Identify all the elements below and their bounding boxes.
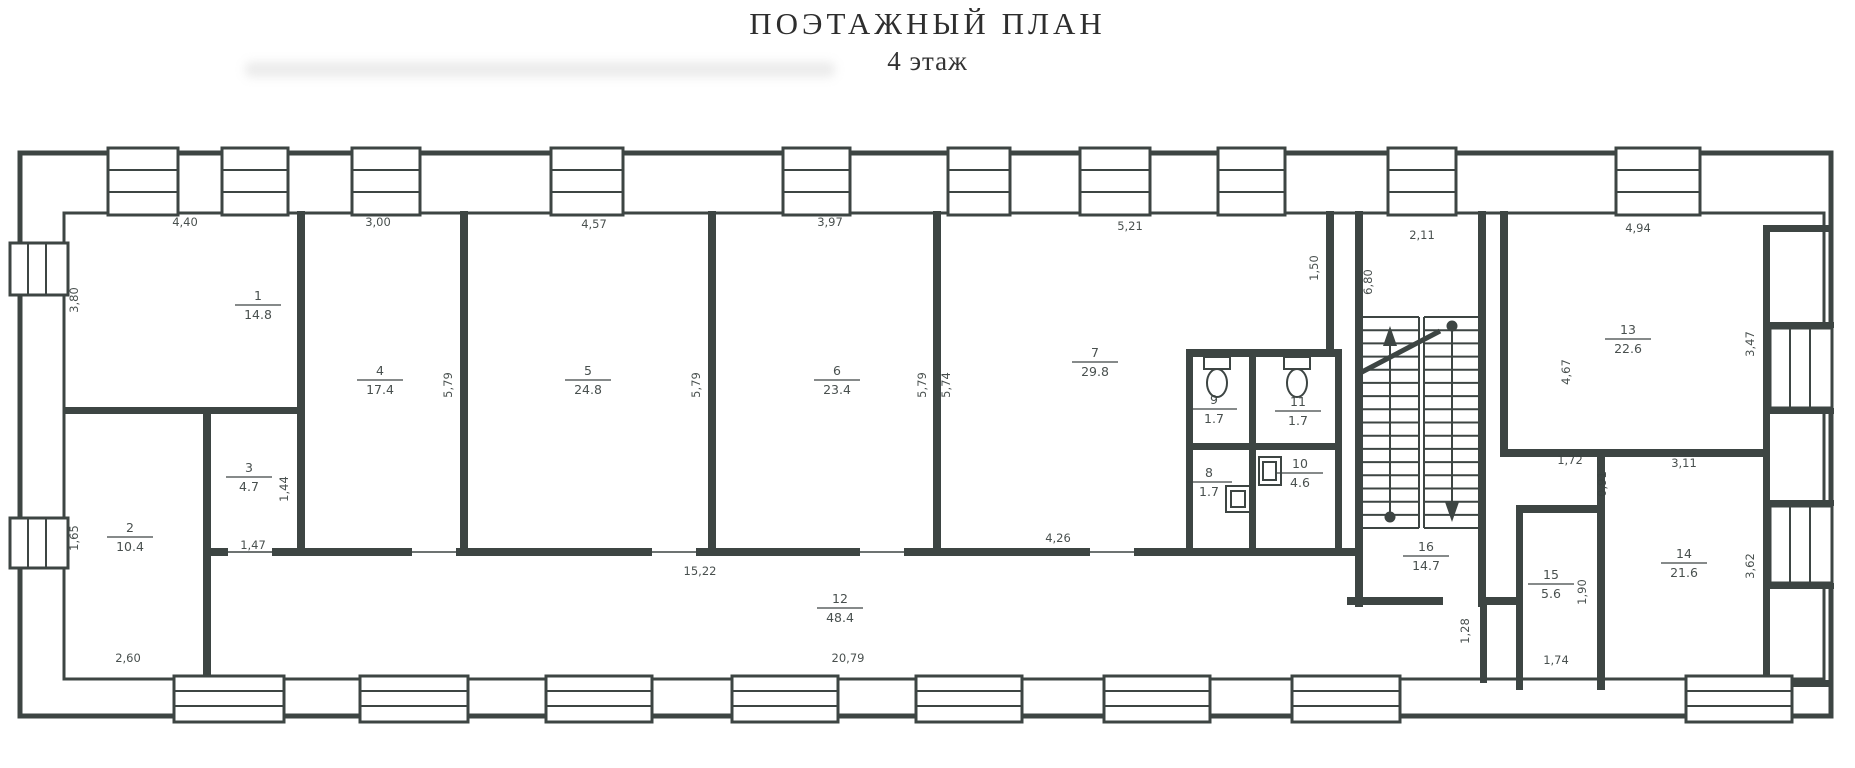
dimension-18-1,65: 1,65 [67,525,81,551]
room-6-label: 623.4 [814,363,860,397]
room-8-number: 8 [1205,465,1213,480]
room-7-number: 7 [1091,345,1099,360]
room-15-number: 15 [1543,567,1559,582]
dimension-17-1,47: 1,47 [240,538,266,552]
dimension-3-3,97: 3,97 [817,215,843,229]
room-11-label: 111.7 [1275,394,1321,428]
sink-icon-room8 [1226,486,1250,512]
room-3-number: 3 [245,460,253,475]
top-windows [108,148,1700,215]
room-14-area: 21.6 [1670,565,1698,580]
room-5-number: 5 [584,363,592,378]
dimension-21-4,26: 4,26 [1045,531,1071,545]
dimension-28-1,74: 1,74 [1543,653,1569,667]
room-2-label: 210.4 [107,520,153,554]
toilet-icon-room9 [1204,357,1230,397]
stair-treads [1363,317,1478,528]
dimension-25-1,72: 1,72 [1557,453,1583,467]
room-15-area: 5.6 [1541,586,1561,601]
room-4-label: 417.4 [357,363,403,397]
room-1-area: 14.8 [244,307,272,322]
dimension-8-5,79: 5,79 [441,372,455,398]
room-12-area: 48.4 [826,610,854,625]
room-7-label: 729.8 [1072,345,1118,379]
outer-walls-layer [20,153,1831,716]
room-12-number: 12 [832,591,848,606]
dimension-16-1,44: 1,44 [277,476,291,502]
windows-layer [10,148,1832,722]
room-2-area: 10.4 [116,539,144,554]
dimension-5-2,11: 2,11 [1409,228,1435,242]
dimension-1-3,00: 3,00 [365,215,391,229]
room-11-area: 1.7 [1288,413,1308,428]
room-9-area: 1.7 [1204,411,1224,426]
dimension-9-5,79: 5,79 [689,372,703,398]
dimension-6-4,94: 4,94 [1625,221,1651,235]
dimension-26-0,91: 0,91 [1595,471,1609,497]
floor-subtitle: 4 этаж [0,46,1855,77]
dimension-29-1,28: 1,28 [1458,618,1472,644]
dimension-20-15,22: 15,22 [684,564,717,578]
room-14-number: 14 [1676,546,1692,561]
room-7-area: 29.8 [1081,364,1109,379]
room-12-label: 1248.4 [817,591,863,625]
room-11-number: 11 [1290,394,1306,409]
dimension-23-3,11: 3,11 [1671,456,1697,470]
room-13-area: 22.6 [1614,341,1642,356]
room-10-label: 104.6 [1277,456,1323,490]
room-3-label: 34.7 [226,460,272,494]
room-6-number: 6 [833,363,841,378]
room-5-label: 524.8 [565,363,611,397]
room-15-label: 155.6 [1528,567,1574,601]
room-16-label: 1614.7 [1403,539,1449,573]
room-13-label: 1322.6 [1605,322,1651,356]
dimension-2-4,57: 4,57 [581,217,607,231]
interior-walls-layer [64,211,1834,690]
sink-icon-room10 [1259,457,1281,485]
room-5-area: 24.8 [574,382,602,397]
dimension-19-2,60: 2,60 [115,651,141,665]
dimension-15-3,47: 3,47 [1743,331,1757,357]
room-10-area: 4.6 [1290,475,1310,490]
title-block: ПОЭТАЖНЫЙ ПЛАН 4 этаж [0,6,1855,77]
floor-plan-drawing: 114.8210.434.7417.4524.8623.4729.881.791… [0,0,1855,768]
room-1-label: 114.8 [235,288,281,322]
room-labels-layer: 114.8210.434.7417.4524.8623.4729.881.791… [107,288,1707,625]
dimension-7-3,80: 3,80 [67,287,81,313]
dimension-24-3,62: 3,62 [1743,553,1757,579]
room-13-number: 13 [1620,322,1636,337]
scanned-floor-plan-page: { "title": "ПОЭТАЖНЫЙ ПЛАН", "subtitle":… [0,0,1855,768]
room-2-number: 2 [126,520,134,535]
dimension-22-20,79: 20,79 [832,651,865,665]
dimension-0-4,40: 4,40 [172,215,198,229]
room-14-label: 1421.6 [1661,546,1707,580]
room-3-area: 4.7 [239,479,259,494]
room-9-label: 91.7 [1191,392,1237,426]
dimension-12-1,50: 1,50 [1307,255,1321,281]
room-16-number: 16 [1418,539,1434,554]
room-16-area: 14.7 [1412,558,1440,573]
room-1-number: 1 [254,288,262,303]
room-4-number: 4 [376,363,384,378]
stair-break-line [1360,331,1440,373]
toilet-icon-room11 [1284,357,1310,397]
page-title: ПОЭТАЖНЫЙ ПЛАН [0,6,1855,42]
dimension-11-5,74: 5,74 [939,372,953,398]
room-10-number: 10 [1292,456,1308,471]
dimension-13-6,80: 6,80 [1361,269,1375,295]
dimension-27-1,90: 1,90 [1575,579,1589,605]
dimension-4-5,21: 5,21 [1117,219,1143,233]
room-9-number: 9 [1210,392,1218,407]
staircase [1360,317,1478,528]
room-4-area: 17.4 [366,382,394,397]
room-8-area: 1.7 [1199,484,1219,499]
dimension-10-5,79: 5,79 [915,372,929,398]
dimension-14-4,67: 4,67 [1559,359,1573,385]
room-6-area: 23.4 [823,382,851,397]
